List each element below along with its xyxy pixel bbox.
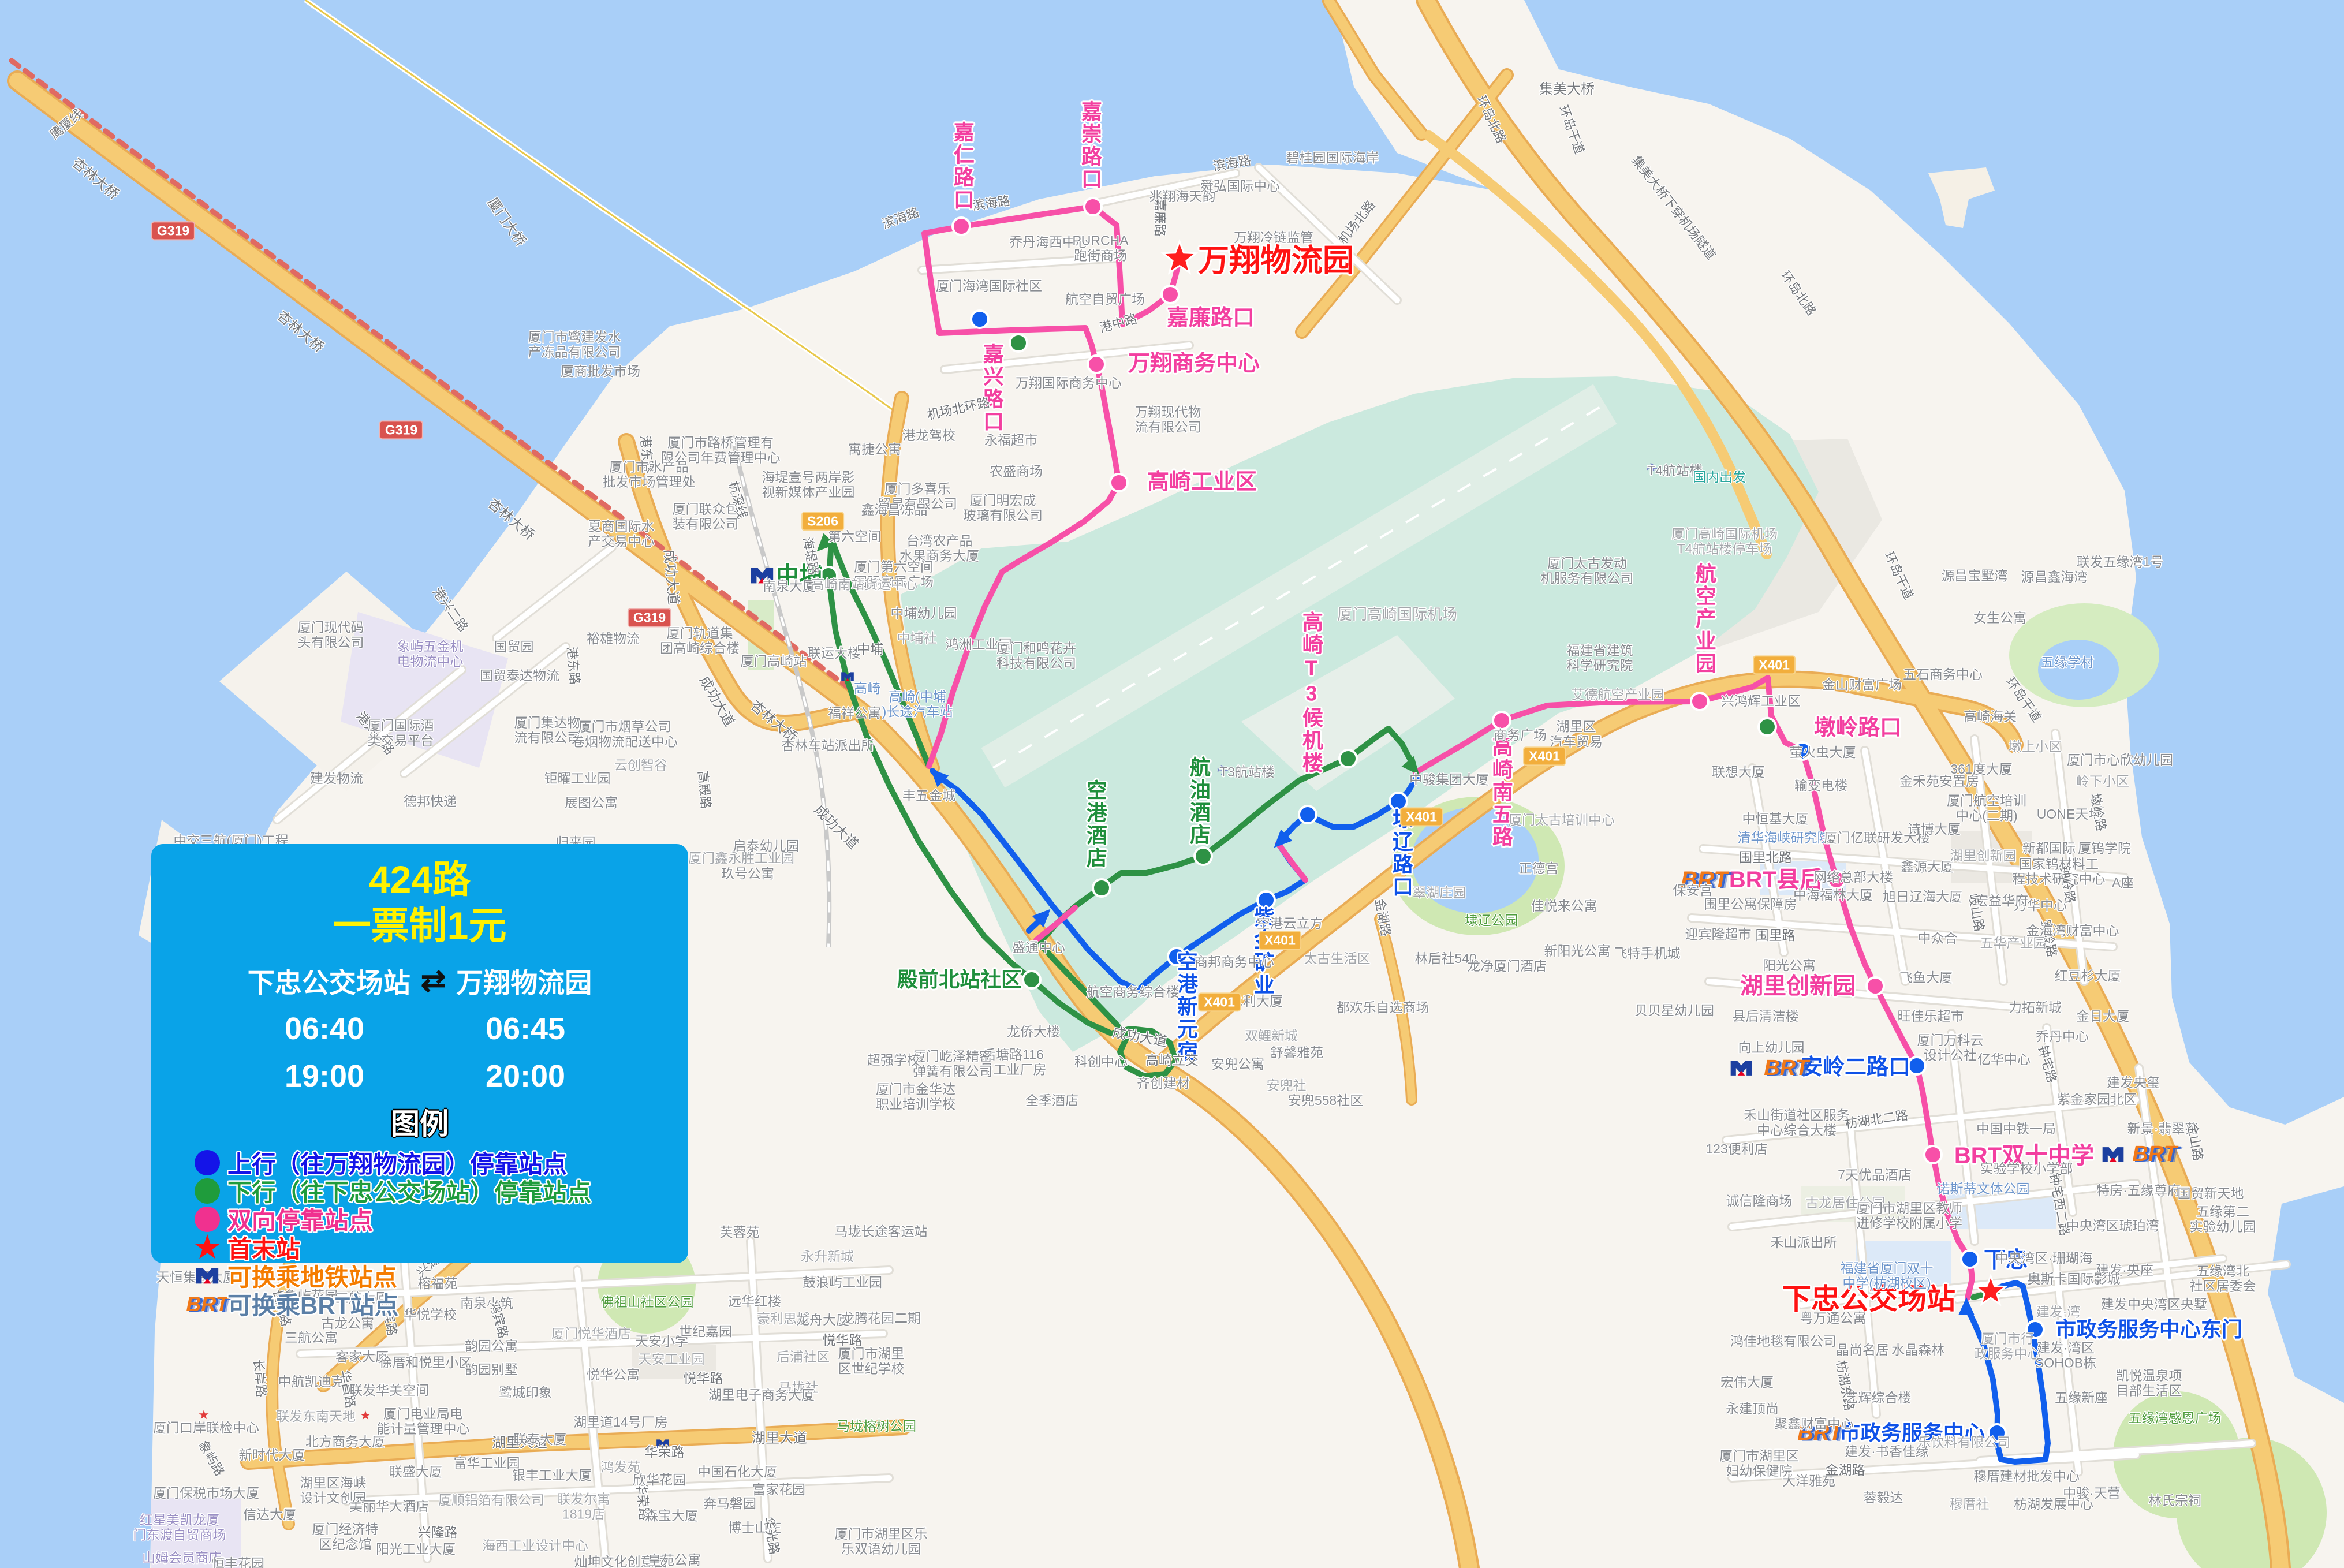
route-number: 424路: [151, 860, 688, 898]
road-badge-G319: G319: [379, 420, 423, 439]
station-dot-hangyou-hotel: [1195, 848, 1212, 865]
fare-label: 一票制1元: [151, 906, 688, 944]
station-label-city-admin-service-center-east-gate: 市政务服务中心东门: [2055, 1319, 2242, 1341]
down-stop-dot-icon: [187, 1178, 227, 1204]
station-label-zhongpu: 中埔: [776, 563, 822, 588]
station-dot-gaoqi-t3-terminal: [1299, 806, 1316, 823]
purple-zone: [151, 1498, 241, 1568]
metro-icon-anling-2nd-intersection: [1729, 1055, 1754, 1081]
station-label-hangyou-hotel: 航油酒店: [1188, 756, 1210, 846]
road-badge-X401: X401: [1400, 807, 1443, 826]
station-dot-city-admin-service-center-east-gate: [2026, 1321, 2044, 1338]
last-bus-from: 19:00: [285, 1058, 364, 1094]
station-dot-dunling-intersection: [1759, 718, 1776, 736]
legend-panel: 424路 一票制1元 下忠公交场站 ⇄ 万翔物流园 06:40 06:45 19…: [151, 844, 688, 1263]
legend-item-down: 下行（往下忠公交场站）停靠站点: [151, 1177, 688, 1205]
station-dot-wanxiang-business-center: [1088, 356, 1105, 373]
station-dot-gaoqi-industrial-zone: [1110, 474, 1128, 491]
first-bus-from: 06:40: [285, 1011, 364, 1047]
station-label-gaoqi-industrial-zone: 高崎工业区: [1147, 471, 1257, 494]
station-dot-jiachong-intersection: [1084, 198, 1102, 215]
road-badge-X401: X401: [1753, 655, 1796, 674]
station-dot-jialian-intersection: [1162, 286, 1179, 303]
metro-icon-brt-shuangshi-middle-school: [2100, 1142, 2126, 1167]
blue-zone: [1856, 1241, 1951, 1287]
station-label-aviation-industrial-park: 航空产业园: [1693, 563, 1715, 675]
map-canvas[interactable]: 万翔物流园嘉仁路口嘉崇路口嘉廉路口嘉兴路口万翔商务中心高崎工业区中埔空港酒店航油…: [0, 0, 2344, 1568]
airport-terminal-icon: ✈: [1646, 460, 1659, 478]
station-dot-jiaxing-intersection: [1010, 334, 1027, 352]
metro-icon-poi: [655, 1436, 670, 1451]
station-dot-brt-xianhou: [1828, 871, 1845, 888]
station-label-xiazhong-bus-terminal: 下忠公交场站: [1782, 1284, 1955, 1315]
road-badge-X401: X401: [1523, 746, 1566, 766]
station-dot-gaoqi-t3-terminal: [1339, 750, 1357, 767]
station-label-brt-shuangshi-middle-school: BRT双十中学: [1954, 1144, 2094, 1168]
station-dot-gaoqi-south-5th-road: [1493, 712, 1510, 729]
station-label-anling-2nd-intersection: 安岭二路口: [1801, 1056, 1910, 1080]
metro-icon-poi: [840, 669, 855, 684]
legend-item-metro: 可换乘地铁站点: [151, 1261, 688, 1290]
station-label-konggang-xinyuansu: 空港新元宿: [1175, 951, 1197, 1063]
station-dot-xiazhong: [1961, 1250, 1979, 1268]
timetable: 06:40 06:45 19:00 20:00: [151, 1011, 688, 1097]
station-label-huli-innovation-park: 湖里创新园: [1740, 974, 1856, 998]
map-base: [0, 0, 2344, 1568]
station-label-jiaxing-intersection: 嘉兴路口: [981, 343, 1003, 433]
metro-icon-zhongpu: [749, 562, 775, 589]
gray-zone: [632, 1345, 716, 1379]
terminus-from: 下忠公交场站: [248, 961, 410, 1000]
station-dot-zhongpu: [820, 567, 837, 584]
both-stop-dot-icon: [187, 1207, 227, 1232]
station-dot-dunling-intersection: [1794, 742, 1811, 760]
station-dot-anling-2nd-intersection: [1908, 1057, 1925, 1074]
station-dot-dianqian-north-station-community: [1023, 971, 1040, 988]
station-label-jiachong-intersection: 嘉崇路口: [1079, 100, 1101, 191]
legend-item-up: 上行（往万翔物流园）停靠站点: [151, 1148, 688, 1177]
station-label-gaoqi-south-5th-road: 高崎南五路: [1490, 736, 1512, 849]
station-label-brt-xianhou: BRT县后: [1729, 868, 1823, 892]
legend-item-terminus: ★ 首末站: [151, 1233, 688, 1261]
station-label-wanxiang-logistics-park: 万翔物流园: [1198, 245, 1354, 278]
station-label-zijin-mining: 紫金矿业: [1252, 906, 1274, 996]
station-dot-aviation-industrial-park: [1691, 693, 1708, 710]
airport-terminal-icon: ✈: [1216, 762, 1229, 780]
station-label-konggang-hotel: 空港酒店: [1084, 779, 1106, 869]
legend-item-brt: BRT 可换乘BRT站点: [151, 1290, 688, 1318]
both-directions-arrow-icon: ⇄: [421, 964, 446, 998]
brt-icon-brt-xianhou: BRT: [1681, 868, 1727, 891]
brt-icon: BRT: [187, 1294, 227, 1315]
station-label-gaoqi-t3-terminal: 高崎T3候机楼: [1300, 611, 1322, 775]
pond: [2038, 640, 2119, 700]
road-badge-G319: G319: [628, 608, 671, 627]
up-stop-dot-icon: [187, 1150, 227, 1175]
terminus-star-icon: ★: [187, 1233, 227, 1263]
station-dot-jiaxing-intersection: [971, 311, 988, 328]
brt-icon-city-admin-service-center: BRT: [1797, 1422, 1842, 1444]
station-label-jiaren-intersection: 嘉仁路口: [951, 121, 973, 211]
last-bus-to: 20:00: [486, 1058, 565, 1094]
station-dot-jiaren-intersection: [953, 218, 970, 235]
terminus-to: 万翔物流园: [456, 961, 592, 1000]
station-dot-brt-shuangshi-middle-school: [1924, 1146, 1942, 1163]
station-dot-huli-innovation-park: [1867, 977, 1884, 995]
road-badge-X401: X401: [1259, 931, 1301, 950]
poi-star-icon: ★: [360, 1408, 371, 1423]
station-label-dunling-intersection: 墩岭路口: [1814, 717, 1902, 740]
legend-heading: 图例: [151, 1101, 688, 1143]
first-bus-to: 06:45: [486, 1011, 565, 1047]
road-badge-S206: S206: [801, 512, 844, 531]
legend-items: 上行（往万翔物流园）停靠站点 下行（往下忠公交场站）停靠站点 双向停靠站点 ★ …: [151, 1148, 688, 1318]
poi-star-icon: ★: [198, 1408, 210, 1423]
station-label-dianqian-north-station-community: 殿前北站社区: [897, 969, 1022, 991]
station-label-wanxiang-business-center: 万翔商务中心: [1128, 353, 1260, 376]
road-badge-X401: X401: [1198, 992, 1241, 1011]
brt-icon-brt-shuangshi-middle-school: BRT: [2132, 1143, 2177, 1165]
station-dot-city-admin-service-center: [1988, 1424, 2006, 1442]
road-badge-G319: G319: [151, 221, 195, 240]
island: [1928, 167, 1995, 228]
station-label-city-admin-service-center: 市政务服务中心: [1839, 1422, 1985, 1444]
route-endpoints: 下忠公交场站 ⇄ 万翔物流园: [151, 961, 688, 1000]
legend-item-both: 双向停靠站点: [151, 1205, 688, 1233]
brt-icon-anling-2nd-intersection: BRT: [1764, 1057, 1808, 1079]
station-dot-konggang-hotel: [1093, 879, 1110, 897]
station-label-xiazhong: 下忠: [1984, 1249, 2028, 1272]
metro-icon: [187, 1263, 227, 1289]
station-label-jialian-intersection: 嘉廉路口: [1167, 307, 1255, 330]
